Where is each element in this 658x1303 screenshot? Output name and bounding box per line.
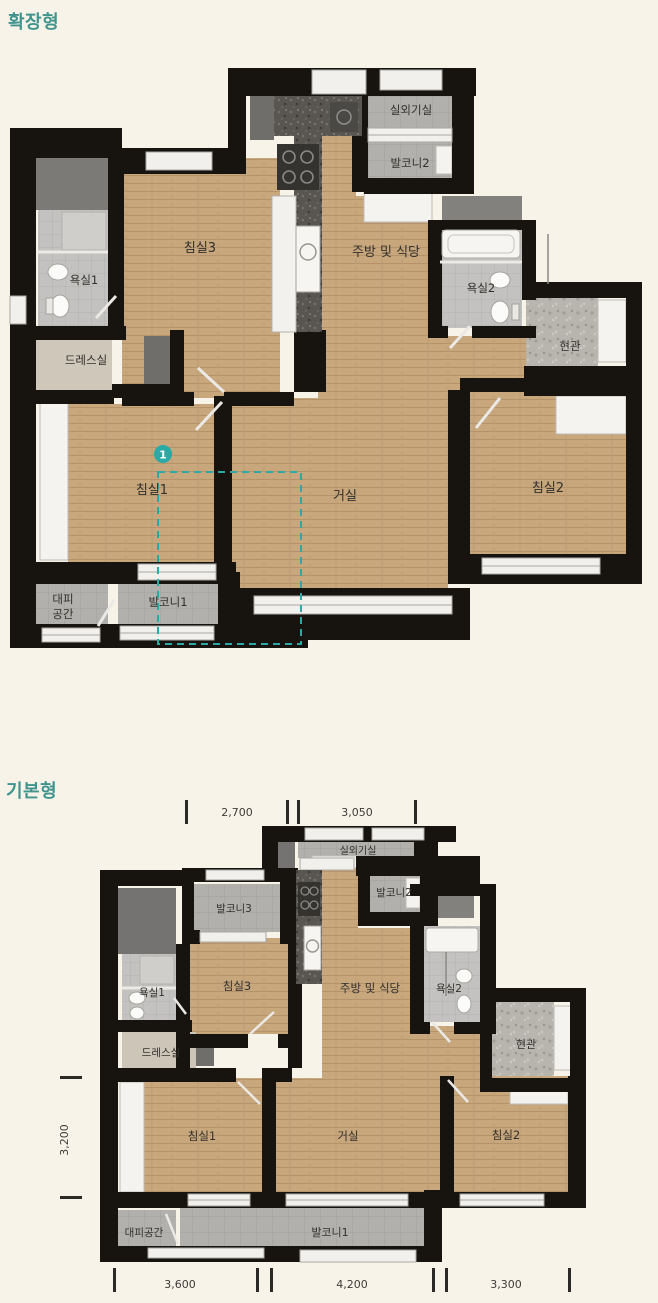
label-bedroom1-b: 침실1 (188, 1129, 216, 1143)
label-bedroom1: 침실1 (136, 483, 168, 498)
wardrobe-topleft (36, 156, 108, 210)
room-entrance-floor (526, 296, 598, 370)
window-top-left-b (305, 828, 363, 840)
room-kitchen-floor-b2 (322, 928, 414, 1078)
storage-above-bath2 (442, 196, 522, 220)
label-bath2: 욕실2 (467, 281, 495, 295)
balcony2-bench (436, 146, 452, 174)
label-bath1-b: 욕실1 (139, 987, 165, 999)
bath2-tub-b (426, 928, 478, 952)
dim-side: 3,200 (58, 1124, 71, 1156)
wardrobe-dressroom (144, 336, 170, 390)
bath2-toilet-b (457, 995, 471, 1013)
label-bath2-b: 욕실2 (436, 983, 462, 995)
bath1-shower-b (140, 956, 174, 984)
label-outdoor-unit-b: 실외기실 (340, 845, 377, 857)
bath1-toilet-tank (46, 298, 53, 314)
window-bedroom3-top (146, 152, 212, 170)
label-kitchen-dining-b: 주방 및 식당 (340, 981, 401, 995)
window-outdoorunit-b (300, 858, 354, 870)
window-balcony3-top-b (206, 870, 264, 880)
oven (330, 102, 358, 132)
refrigerator (250, 96, 274, 140)
label-shelter-b: 대피공간 (125, 1227, 164, 1239)
bath2-tub (442, 230, 520, 258)
label-bedroom2-b: 침실2 (492, 1128, 520, 1142)
label-outdoor-unit: 실외기실 (390, 103, 432, 117)
bath1-shower (62, 212, 106, 250)
label-living: 거실 (333, 489, 357, 504)
basic-kitchen (296, 870, 322, 984)
room-kitchen-floor-b1 (322, 866, 358, 928)
label-bath1: 욕실1 (70, 273, 98, 287)
kitchen-sink (296, 226, 320, 292)
annotation-marker-number: 1 (159, 449, 167, 462)
label-entrance: 현관 (559, 339, 581, 353)
window-balcony-bottom-right-b (300, 1250, 416, 1262)
dim-bottom-left: 3,600 (164, 1278, 196, 1291)
label-shelter-line1: 대피 (52, 592, 73, 606)
label-balcony1: 발코니1 (148, 595, 187, 609)
room-balcony1-floor-b (180, 1206, 424, 1250)
closet-bedroom2 (556, 396, 626, 434)
floorplan-page: 확장형 (0, 0, 658, 1303)
window-top-right-b (372, 828, 424, 840)
dim-top-left: 2,700 (221, 806, 253, 819)
label-balcony2: 발코니2 (390, 156, 429, 170)
bath2-toilet-tank (512, 304, 519, 320)
window-balcony3-bottom-b (200, 932, 266, 942)
kitchen-white-counter (272, 196, 296, 332)
stove-b (298, 882, 320, 916)
label-balcony1-b: 발코니1 (311, 1226, 348, 1239)
dim-bottom-center: 4,200 (336, 1278, 368, 1291)
window-top-appliance (312, 70, 366, 94)
closet-below-balcony2 (364, 192, 432, 222)
bath1-toilet (51, 295, 69, 317)
label-bedroom2: 침실2 (532, 481, 564, 496)
label-dress-room: 드레스실 (65, 353, 107, 367)
label-entrance-b: 현관 (516, 1038, 536, 1051)
label-living-b: 거실 (337, 1129, 358, 1143)
plan-basic-drawing: 2,700 3,050 3,200 3,600 4,200 3,300 실외기실… (0, 780, 658, 1303)
shoe-closet-entrance-b (554, 1006, 572, 1070)
bath1-toilet-b (130, 1007, 144, 1019)
label-dress-room-b: 드레스실 (142, 1047, 181, 1059)
plan-extended-title: 확장형 (8, 8, 59, 34)
label-balcony2-b: 발코니2 (376, 887, 412, 899)
shoe-closet-entrance (598, 300, 626, 362)
window-balcony-bottom-left-b (148, 1248, 264, 1258)
closet-bedroom1-b (120, 1082, 144, 1192)
wardrobe-topleft-b (118, 888, 176, 954)
label-bedroom3-b: 침실3 (223, 979, 251, 993)
plan-extended-drawing: 1 실외기실 발코니2 침실3 주방 및 식당 욕실1 드레스실 욕실2 현관 … (0, 48, 658, 688)
label-balcony3-b: 발코니3 (216, 903, 252, 915)
bath2-toilet (491, 301, 509, 323)
stove (277, 144, 319, 190)
dim-bottom-right: 3,300 (490, 1278, 522, 1291)
label-shelter-line2: 공간 (52, 607, 74, 621)
window-left-wall (10, 296, 26, 324)
label-kitchen-dining: 주방 및 식당 (352, 245, 420, 260)
room-corridor-floor (322, 336, 526, 406)
closet-bedroom1 (40, 400, 68, 560)
label-bedroom3: 침실3 (184, 241, 216, 256)
bath2-sink-b (456, 969, 472, 983)
bath1-sink (48, 264, 68, 280)
dim-top-right: 3,050 (341, 806, 373, 819)
window-outdoorunit-top (380, 70, 442, 90)
